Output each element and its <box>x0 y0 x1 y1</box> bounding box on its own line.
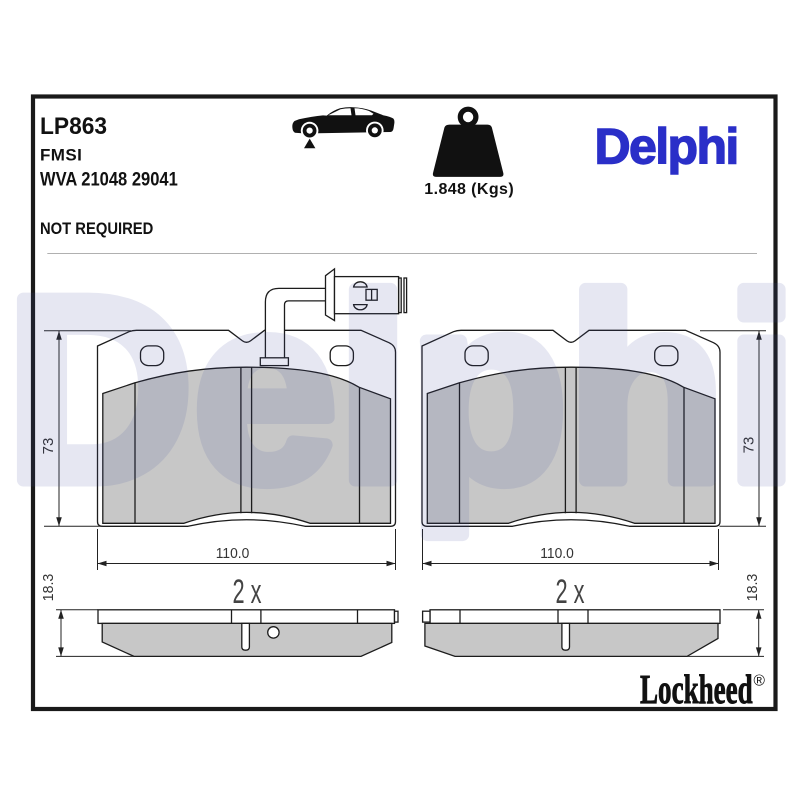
svg-text:FMSI: FMSI <box>40 146 82 165</box>
svg-text:1.848 (Kgs): 1.848 (Kgs) <box>424 181 514 198</box>
svg-text:WVA 21048 29041: WVA 21048 29041 <box>40 168 178 189</box>
svg-text:18.3: 18.3 <box>745 574 761 602</box>
svg-text:110.0: 110.0 <box>540 546 573 563</box>
svg-text:2 x: 2 x <box>232 573 261 611</box>
svg-text:2 x: 2 x <box>555 573 584 611</box>
svg-text:®: ® <box>754 673 766 690</box>
svg-text:Delphi: Delphi <box>595 119 738 175</box>
svg-text:LP863: LP863 <box>40 113 107 140</box>
svg-text:18.3: 18.3 <box>41 574 57 602</box>
svg-text:110.0: 110.0 <box>216 546 249 563</box>
svg-text:NOT REQUIRED: NOT REQUIRED <box>40 220 153 238</box>
svg-text:Lockheed: Lockheed <box>640 666 753 712</box>
svg-text:Delphi: Delphi <box>6 243 798 537</box>
